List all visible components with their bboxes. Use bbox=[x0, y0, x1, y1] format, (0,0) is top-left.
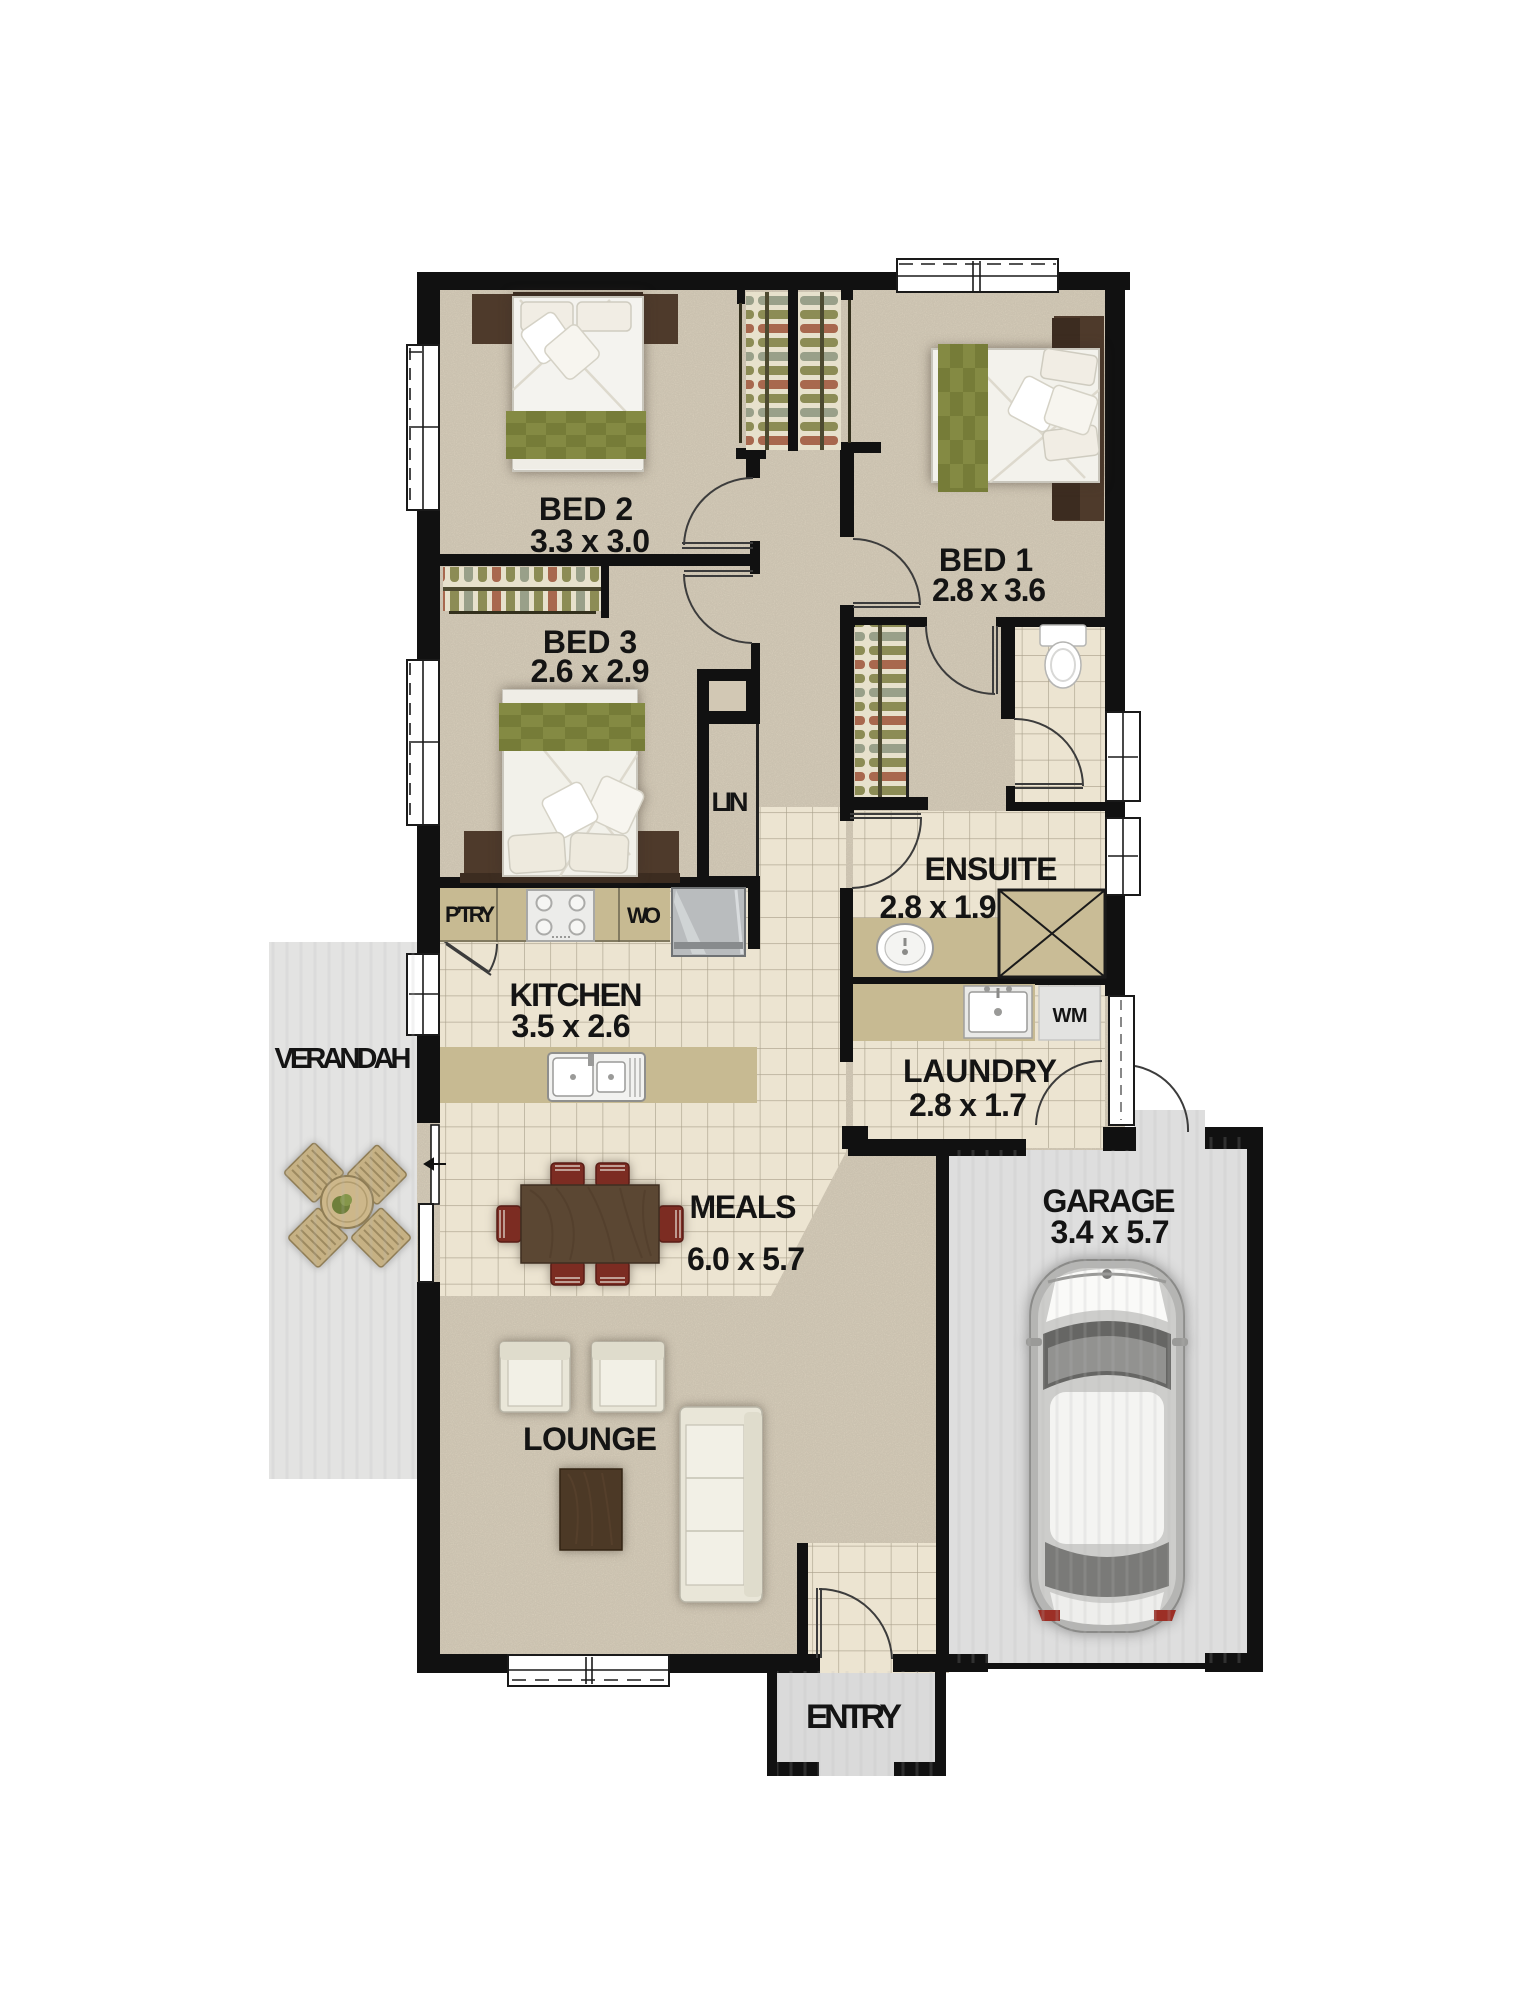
svg-text:2.8 x 1.9: 2.8 x 1.9 bbox=[880, 889, 997, 925]
svg-text:6.0 x 5.7: 6.0 x 5.7 bbox=[687, 1241, 805, 1277]
svg-text:WM: WM bbox=[1053, 1005, 1088, 1027]
svg-text:VERANDAH: VERANDAH bbox=[275, 1043, 412, 1075]
svg-text:2.8 x 1.7: 2.8 x 1.7 bbox=[909, 1087, 1027, 1123]
svg-text:ENSUITE: ENSUITE bbox=[925, 851, 1058, 887]
svg-text:3.3 x 3.0: 3.3 x 3.0 bbox=[530, 523, 650, 559]
svg-text:MEALS: MEALS bbox=[690, 1189, 797, 1225]
svg-text:LOUNGE: LOUNGE bbox=[523, 1421, 657, 1457]
svg-text:3.5 x 2.6: 3.5 x 2.6 bbox=[512, 1008, 631, 1044]
svg-text:ENTRY: ENTRY bbox=[806, 1698, 902, 1736]
svg-text:3.4 x 5.7: 3.4 x 5.7 bbox=[1051, 1214, 1170, 1250]
svg-text:2.8 x 3.6: 2.8 x 3.6 bbox=[932, 572, 1046, 608]
svg-text:BED 2: BED 2 bbox=[539, 491, 633, 527]
svg-text:WO: WO bbox=[627, 903, 661, 928]
svg-text:2.6 x 2.9: 2.6 x 2.9 bbox=[531, 653, 650, 689]
svg-text:LAUNDRY: LAUNDRY bbox=[903, 1053, 1057, 1089]
svg-text:P’TRY: P’TRY bbox=[445, 902, 495, 927]
svg-text:LIN: LIN bbox=[712, 787, 749, 817]
